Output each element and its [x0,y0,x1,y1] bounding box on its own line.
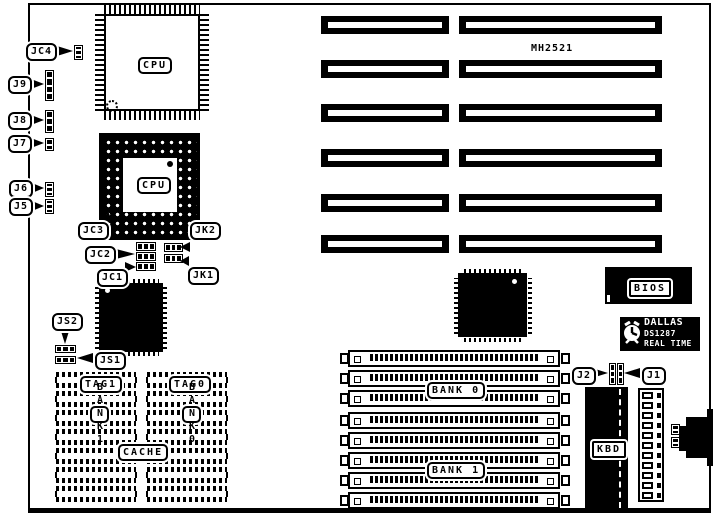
connector-pin [657,463,661,468]
jumper-label-jc2: JC2 [85,246,116,264]
connector-pin [657,403,661,408]
chipset-left-chip [95,279,167,356]
jc2-pointer [116,249,135,259]
jumper-cell [57,358,61,362]
pin1-marker-icon [106,100,118,112]
jumper-cell [47,146,52,150]
jumper-label-jc1: JC1 [97,269,128,287]
jumper-cell [144,244,148,249]
board-model-text: MH2521 [531,43,573,54]
din-connector-edge [707,409,713,466]
jumper-cell [47,140,52,144]
connector-pin [657,443,661,448]
jumper-j9 [45,70,54,101]
jumper-cell [619,372,622,377]
jumper-cell [172,256,176,261]
din-connector-step [679,426,687,451]
cache-label: CACHE [118,444,168,461]
rtc-chip: DALLAS DS1287 REAL TIME [620,317,700,351]
jumper-j2-col [609,363,616,385]
bank1-label: BANK 1 [427,462,485,479]
jumper-j1-col [617,363,624,385]
motherboard-diagram: MH2521 CPU CPU BIOS [0,0,715,520]
connector-pin [657,413,661,418]
jumper-label-jc4: JC4 [26,43,57,61]
jumper-cell [144,254,148,259]
connector-pin [642,462,653,469]
jumper-cell [47,72,52,77]
jumper-label-j5: J5 [9,198,33,216]
jc3-pointer [103,211,113,223]
jumper-label-js1: JS1 [95,352,126,370]
jumper-j7 [45,138,54,151]
chipset-left-pins-right [163,287,167,349]
jumper-cell [150,244,154,249]
cache-bank1-vertical-label: BANK1 [90,406,109,423]
connector-pin [642,392,653,399]
jumper-cell [619,378,622,383]
jumper-label-j9: J9 [8,76,32,94]
jumper-cell [166,256,170,261]
jumper-cell [47,210,52,212]
connector-pin [642,402,653,409]
cache-chip [55,467,137,483]
connector-pin [657,423,661,428]
pga-pin1-dot [167,161,173,167]
kbd-label: KBD [592,441,626,458]
jumper-cell [611,365,614,370]
j1-pointer [624,368,640,378]
jumper-label-j7: J7 [8,135,32,153]
jumper-jc-row3 [136,262,156,271]
jumper-cell [63,347,67,351]
jumper-cell [144,264,148,269]
jumper-cell [673,439,678,442]
cache-bank0-vertical-label: BANK0 [182,406,201,423]
jumper-label-js2: JS2 [52,313,83,331]
jumper-cell [611,372,614,377]
connector-pin [657,493,661,498]
jumper-j6 [45,182,54,197]
j8-pointer [31,115,44,125]
jumper-cell [172,245,176,250]
cache-chip [146,467,228,483]
jumper-cell [47,119,52,124]
cache-chip [55,486,137,502]
jumper-cell [47,193,52,195]
connector-pin [642,422,653,429]
jumper-j5 [45,199,54,214]
jumper-j8 [45,110,54,133]
jumper-cell [47,79,52,84]
jumper-cell [611,378,614,383]
jumper-jc4 [74,45,83,60]
jumper-cell [47,126,52,131]
js1-pointer [77,353,93,363]
jumper-cell [47,112,52,117]
jumper-label-j8: J8 [8,112,32,130]
chipset-right-pins-right [528,278,532,334]
bios-label: BIOS [629,280,671,297]
jumper-cell [47,94,52,99]
jumper-cell [47,184,52,186]
rtc-text-line1: DALLAS [644,318,683,328]
din-pin-header-1 [671,424,680,435]
jumper-cell [76,47,81,49]
cpu-qfp-pins-right [200,14,209,111]
jumper-cell [63,358,67,362]
jumper-j2-j1 [609,363,624,385]
jumper-js1 [55,356,76,364]
jumper-cell [70,358,74,362]
connector-pin [657,433,661,438]
jumper-js2 [55,345,76,353]
jumper-label-jc3: JC3 [78,222,109,240]
chipset-left-body [99,283,163,352]
chipset-right-chip [454,269,532,342]
jumper-cell [619,365,622,370]
jumper-label-j1: J1 [642,367,666,385]
jumper-cell [47,201,52,203]
alarm-clock-icon [622,321,642,345]
cpu-pga-label: CPU [137,177,171,194]
jumper-cell [47,188,52,190]
j6-pointer [32,183,44,193]
j9-pointer [31,79,44,89]
jumper-cell [150,254,154,259]
jumper-label-jk2: JK2 [190,222,221,240]
jumper-label-j2: J2 [572,367,596,385]
connector-pin [642,482,653,489]
connector-pin [642,492,653,499]
chipset-right-pin1-dot [512,279,517,284]
jumper-cell [673,444,678,447]
connector-pin [642,452,653,459]
jumper-cell [47,87,52,92]
chipset-right-pins-bottom [464,338,522,342]
connector-pin [657,483,661,488]
chipset-left-pin1-dot [105,288,110,293]
j7-pointer [31,138,44,148]
connector-pin [642,432,653,439]
cpu-qfp-pins-left [95,14,104,111]
connector-pin [657,393,661,398]
cpu-qfp-pins-bottom [104,111,200,120]
bios-pin1-mark [607,295,610,302]
jumper-cell [138,254,142,259]
connector-pin [642,472,653,479]
jumper-cell [70,347,74,351]
connector-pin [642,412,653,419]
jumper-cell [76,51,81,53]
din-pin-header-2 [671,437,680,448]
jumper-label-j6: J6 [9,180,33,198]
jk2-pointer [180,242,190,252]
cpu-qfp-label: CPU [138,57,172,74]
jumper-jc-row2 [136,252,156,261]
jc4-pointer [57,46,73,56]
jumper-cell [138,244,142,249]
connector-pin [657,473,661,478]
jumper-label-jk1: JK1 [188,267,219,285]
cache-chip [146,486,228,502]
jumper-cell [76,56,81,58]
kbd-header-connector [638,388,664,502]
jumper-cell [673,426,678,429]
bank0-label: BANK 0 [427,382,485,399]
cpu-qfp-pins-top [104,5,200,14]
jk1-pointer [180,256,189,266]
jumper-cell [138,264,142,269]
jumper-cell [47,205,52,207]
jumper-jc-row1 [136,242,156,251]
jumper-cell [57,347,61,351]
rtc-text-line3: REAL TIME [644,339,692,349]
connector-pin [642,442,653,449]
jumper-cell [166,245,170,250]
connector-pin [657,453,661,458]
rtc-text-line2: DS1287 [644,329,676,339]
jumper-cell [673,431,678,434]
jumper-cell [150,264,154,269]
j5-pointer [32,201,44,211]
